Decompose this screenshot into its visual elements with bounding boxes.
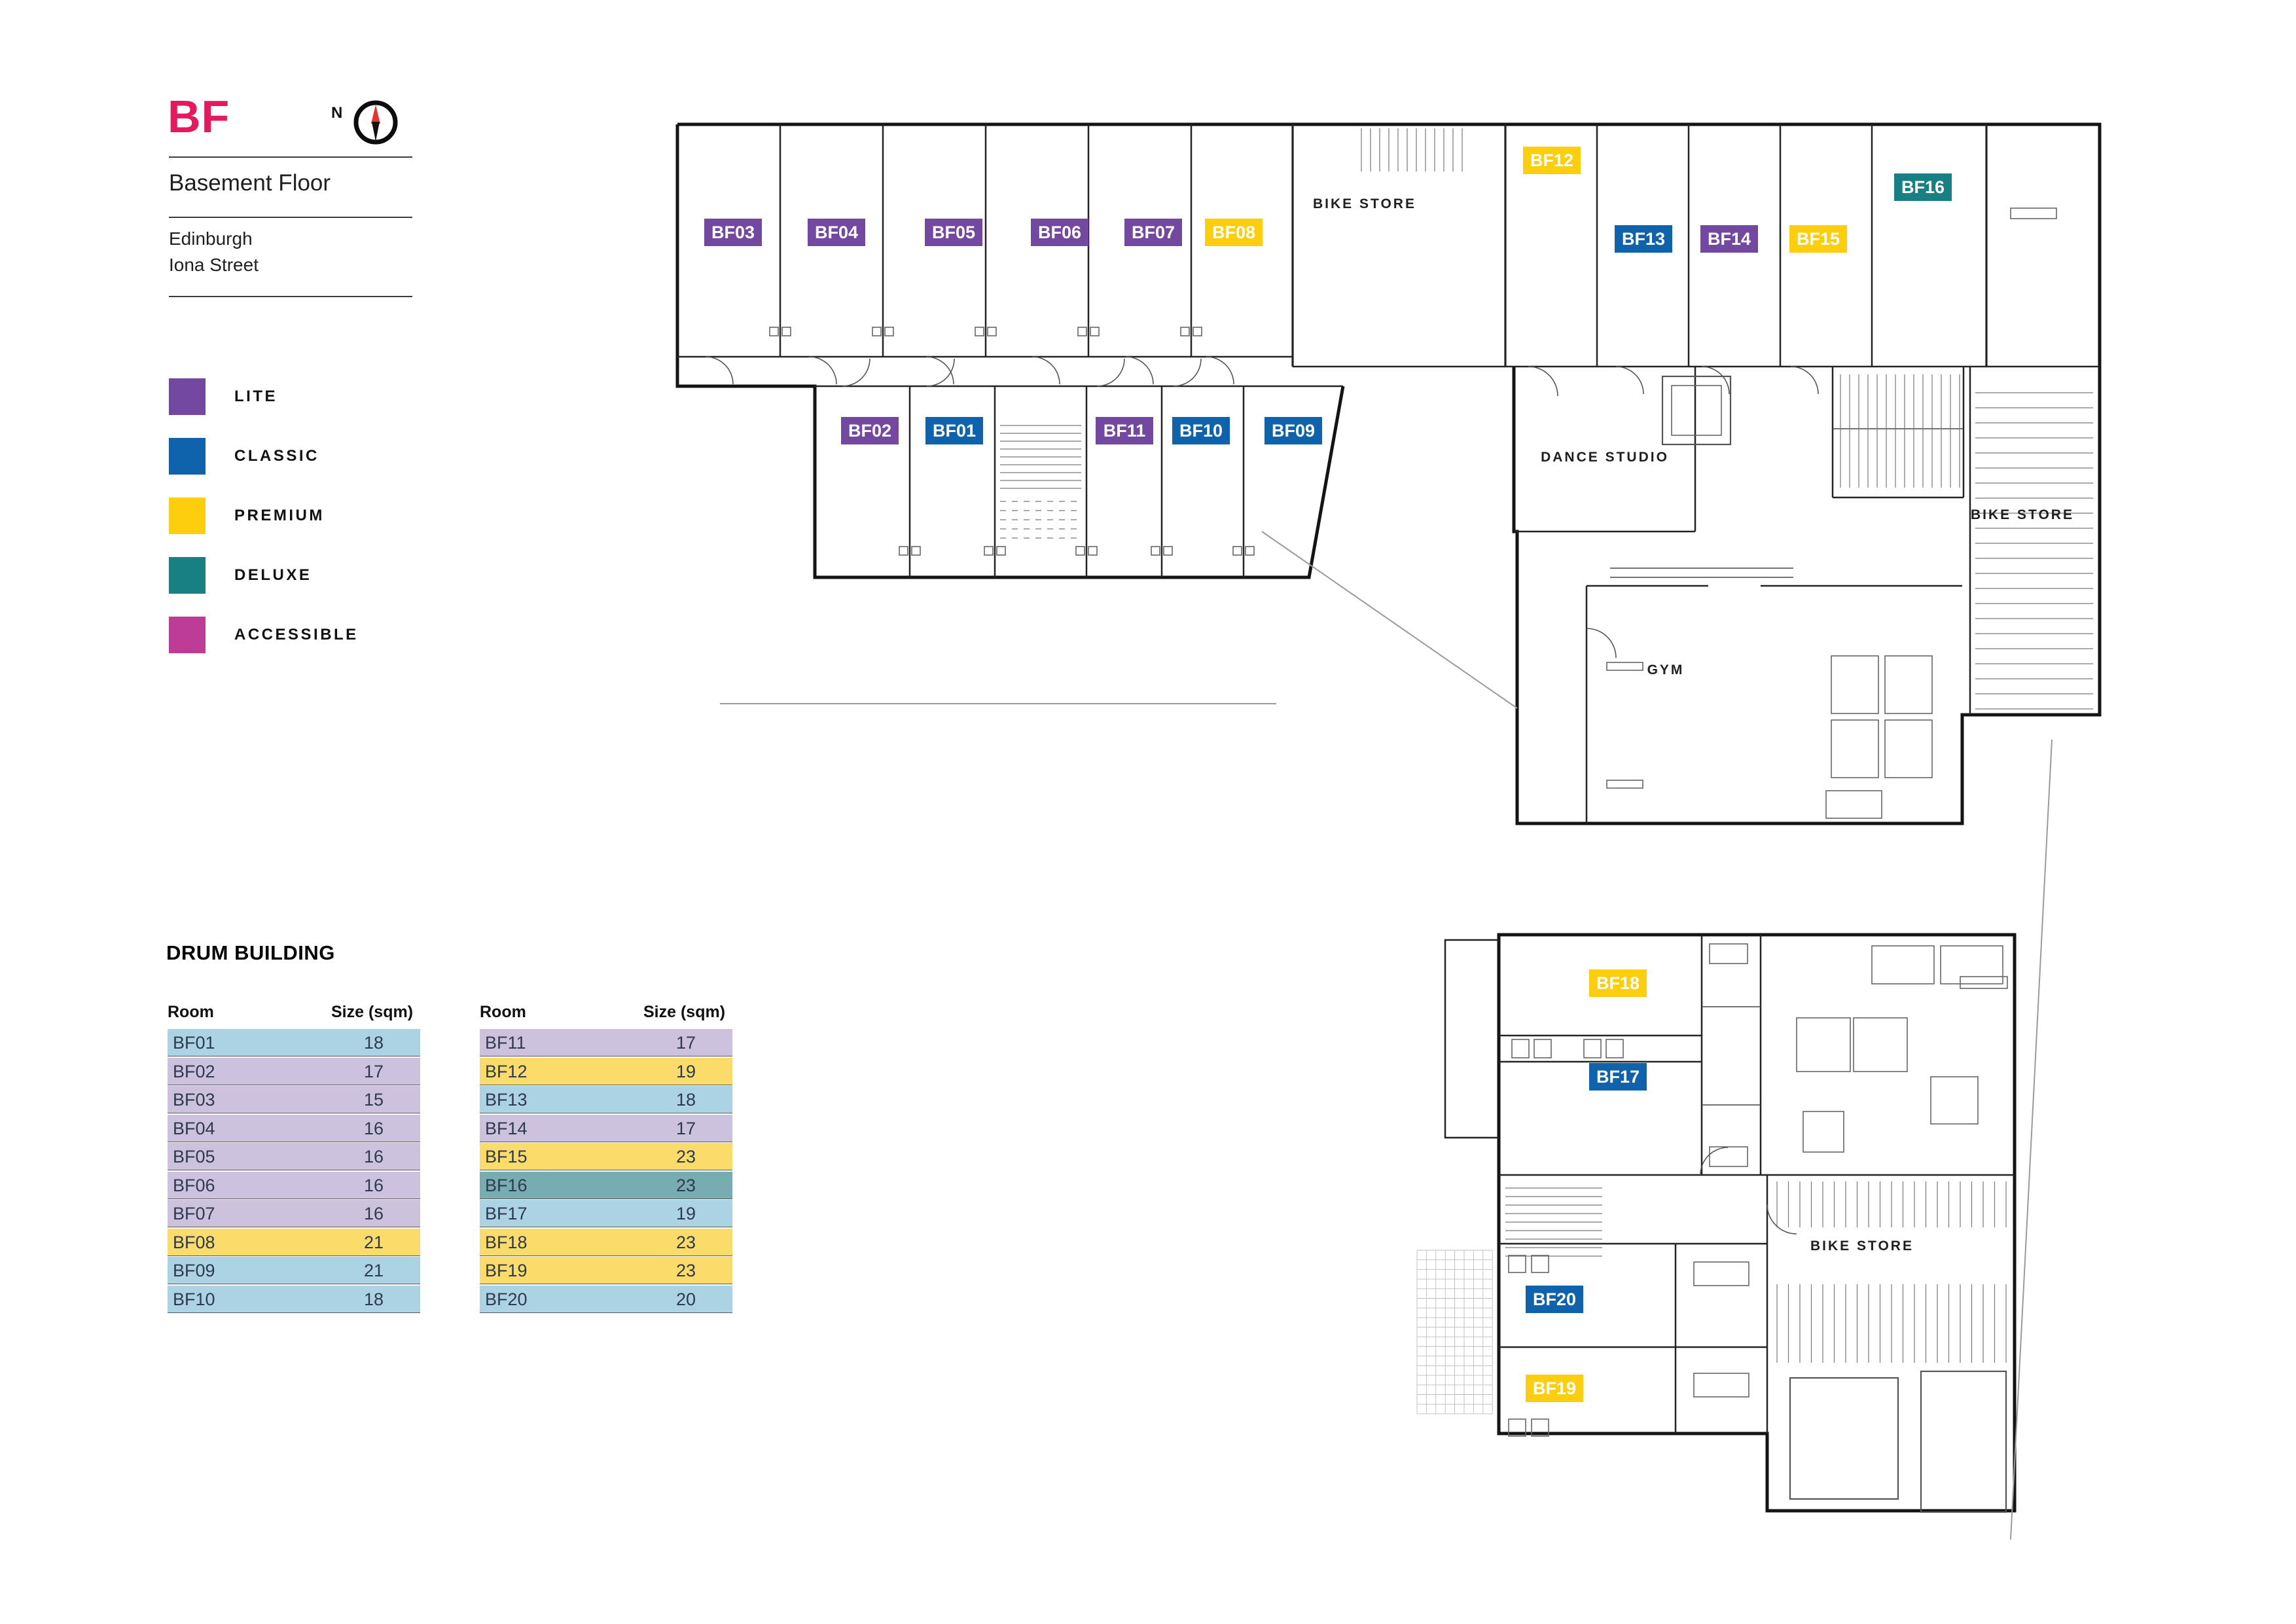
room-label-BF19: BF19: [1526, 1375, 1583, 1402]
svg-text:BF06: BF06: [1038, 223, 1081, 242]
area-label-gym: GYM: [1647, 662, 1685, 677]
room-label-BF18: BF18: [1589, 969, 1647, 997]
area-label-dance-studio: DANCE STUDIO: [1541, 450, 1669, 465]
room-label-BF07: BF07: [1124, 219, 1182, 246]
room-label-BF10: BF10: [1172, 417, 1230, 444]
svg-text:BF05: BF05: [932, 223, 975, 242]
floorplan-page: BF N Basement Floor Edinburgh Iona Stree…: [0, 0, 2296, 1624]
svg-text:BF19: BF19: [1533, 1379, 1576, 1398]
room-label-BF17: BF17: [1589, 1063, 1647, 1091]
room-label-BF01: BF01: [925, 417, 983, 444]
svg-text:BF20: BF20: [1533, 1290, 1576, 1309]
room-label-BF16: BF16: [1894, 173, 1952, 201]
room-label-BF02: BF02: [841, 417, 899, 444]
svg-text:BF04: BF04: [815, 223, 858, 242]
svg-text:BF13: BF13: [1622, 229, 1665, 249]
svg-text:BF16: BF16: [1901, 177, 1945, 197]
room-label-BF03: BF03: [704, 219, 762, 246]
room-label-BF08: BF08: [1205, 219, 1263, 246]
room-label-BF20: BF20: [1526, 1286, 1583, 1313]
room-label-BF13: BF13: [1615, 225, 1672, 253]
svg-text:BF18: BF18: [1596, 973, 1640, 993]
svg-text:BF14: BF14: [1708, 229, 1751, 249]
svg-text:BF09: BF09: [1272, 421, 1315, 441]
svg-text:BF12: BF12: [1530, 151, 1573, 170]
area-label-bike-store: BIKE STORE: [1971, 507, 2074, 522]
room-label-BF04: BF04: [808, 219, 865, 246]
svg-text:BF11: BF11: [1103, 421, 1146, 441]
room-label-BF06: BF06: [1031, 219, 1088, 246]
svg-text:BF15: BF15: [1797, 229, 1840, 249]
svg-text:BF08: BF08: [1212, 223, 1255, 242]
svg-text:BF01: BF01: [933, 421, 976, 441]
room-label-BF05: BF05: [925, 219, 982, 246]
svg-text:BF07: BF07: [1132, 223, 1175, 242]
room-label-BF15: BF15: [1789, 225, 1847, 253]
room-label-BF11: BF11: [1096, 417, 1153, 444]
area-label-bike-store: BIKE STORE: [1313, 196, 1416, 211]
svg-text:BF17: BF17: [1596, 1067, 1640, 1087]
lower-building-balcony: [1445, 940, 1499, 1138]
room-label-BF09: BF09: [1265, 417, 1322, 444]
svg-text:BF03: BF03: [711, 223, 755, 242]
room-label-BF14: BF14: [1700, 225, 1758, 253]
svg-text:BF10: BF10: [1179, 421, 1223, 441]
svg-text:BF02: BF02: [848, 421, 891, 441]
room-label-BF12: BF12: [1523, 147, 1581, 174]
floor-plan-drawing: BIKE STOREDANCE STUDIOGYMBIKE STOREBIKE …: [0, 0, 2296, 1624]
area-label-bike-store: BIKE STORE: [1810, 1238, 1914, 1254]
